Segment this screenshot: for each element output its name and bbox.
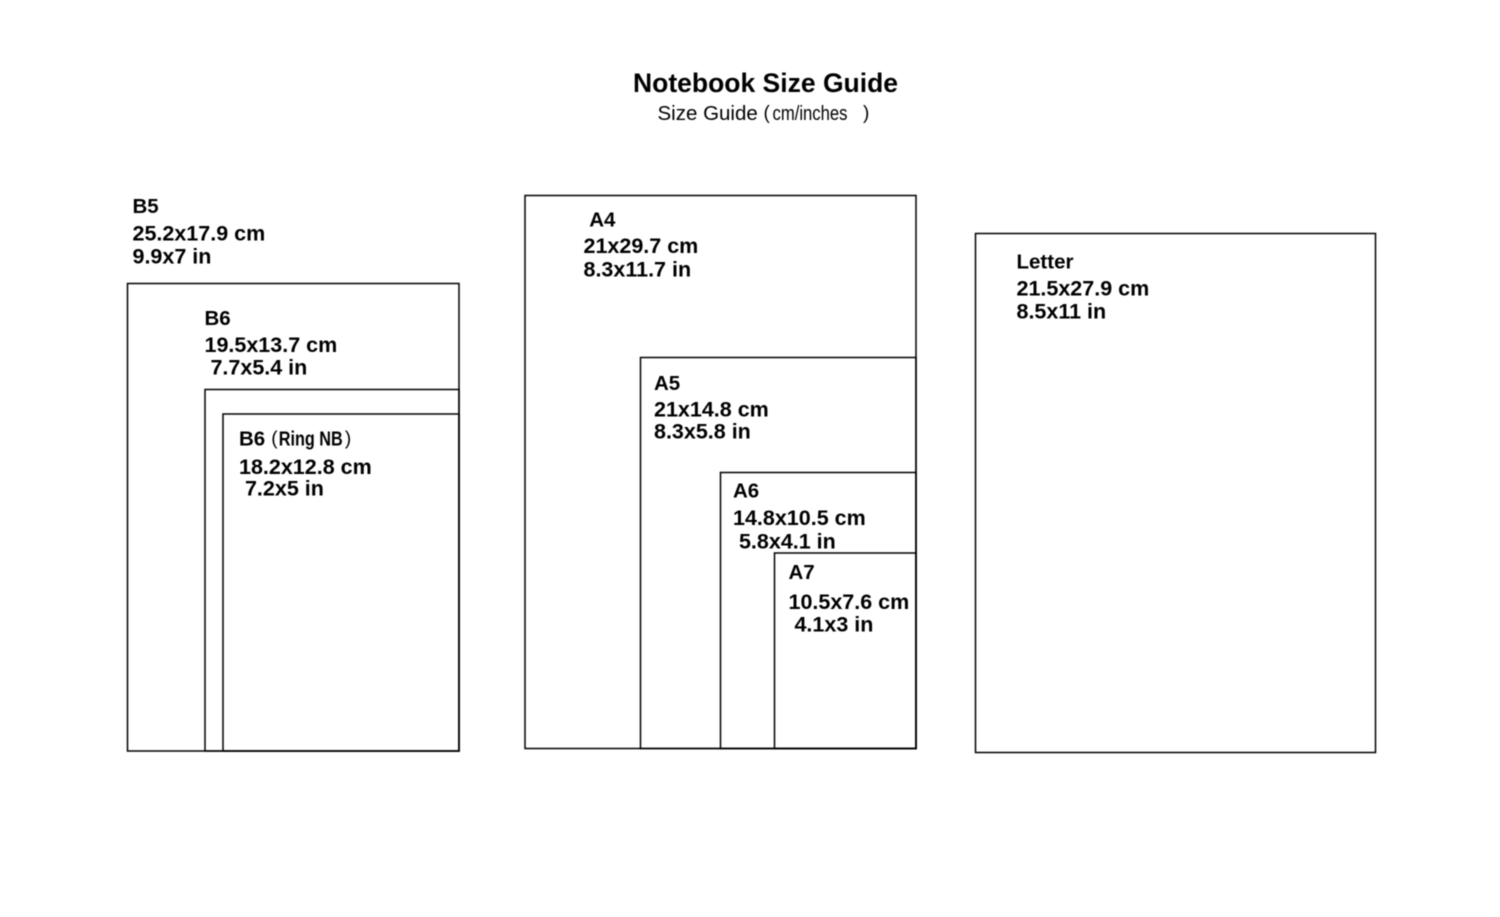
svg-text:A6: A6: [733, 480, 759, 503]
svg-text:B6: B6: [205, 307, 231, 330]
svg-text:Size Guide (cm/inches): Size Guide (cm/inches): [658, 102, 870, 125]
svg-text:25.2x17.9 cm: 25.2x17.9 cm: [133, 222, 266, 246]
svg-text:14.8x10.5 cm: 14.8x10.5 cm: [733, 506, 866, 530]
svg-text:A7: A7: [789, 561, 815, 584]
svg-text:10.5x7.6 cm: 10.5x7.6 cm: [789, 590, 910, 614]
svg-text:21x29.7 cm: 21x29.7 cm: [584, 234, 699, 258]
svg-text:B5: B5: [133, 195, 159, 218]
svg-text:21x14.8 cm: 21x14.8 cm: [654, 398, 769, 422]
svg-text:8.3x11.7 in: 8.3x11.7 in: [584, 258, 692, 282]
svg-text:5.8x4.1 in: 5.8x4.1 in: [733, 530, 836, 554]
svg-text:B6 (Ring NB): B6 (Ring NB): [239, 428, 351, 451]
svg-text:Letter: Letter: [1017, 251, 1074, 274]
svg-text:7.2x5 in: 7.2x5 in: [239, 477, 324, 501]
svg-text:Notebook Size Guide: Notebook Size Guide: [633, 68, 898, 98]
svg-text:8.3x5.8 in: 8.3x5.8 in: [654, 420, 751, 444]
svg-text:8.5x11 in: 8.5x11 in: [1017, 300, 1107, 324]
svg-text:9.9x7 in: 9.9x7 in: [133, 245, 212, 269]
svg-text:21.5x27.9 cm: 21.5x27.9 cm: [1017, 277, 1150, 301]
svg-text:19.5x13.7 cm: 19.5x13.7 cm: [205, 333, 338, 357]
svg-text:4.1x3 in: 4.1x3 in: [789, 613, 874, 637]
svg-text:A5: A5: [654, 372, 680, 395]
svg-text:7.7x5.4 in: 7.7x5.4 in: [205, 356, 308, 380]
svg-text:A4: A4: [584, 209, 617, 232]
svg-text:18.2x12.8 cm: 18.2x12.8 cm: [239, 455, 372, 479]
